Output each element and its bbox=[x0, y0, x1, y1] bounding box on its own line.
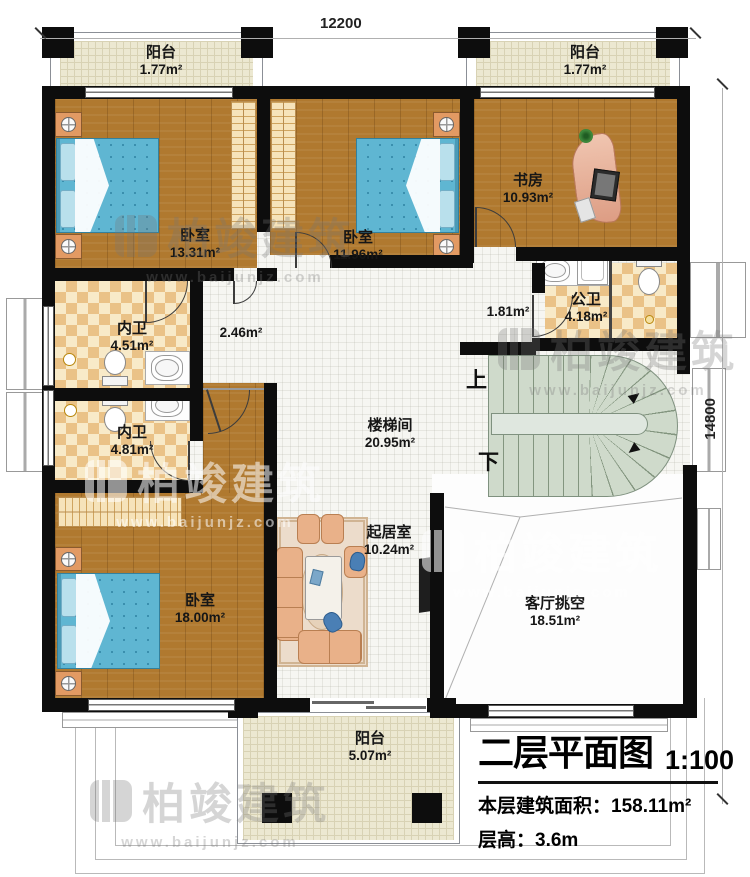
pillar bbox=[42, 27, 74, 58]
wardrobe bbox=[58, 497, 182, 527]
wall-segment bbox=[264, 698, 310, 712]
room-label-balcony-tr: 阳台1.77m² bbox=[525, 44, 645, 78]
nightstand bbox=[55, 547, 82, 571]
pillow bbox=[60, 190, 76, 228]
lamp-icon bbox=[61, 676, 76, 691]
wall-segment bbox=[677, 86, 690, 374]
room-label-bedroom2: 卧室11.96m² bbox=[298, 229, 418, 263]
wall-segment bbox=[532, 338, 690, 351]
wall-segment bbox=[516, 247, 690, 261]
sofa bbox=[276, 547, 303, 641]
nightstand bbox=[55, 671, 82, 696]
pillow bbox=[61, 578, 77, 617]
window bbox=[85, 87, 233, 98]
room-label-bedroom1: 卧室13.31m² bbox=[135, 227, 255, 261]
exterior-window bbox=[697, 508, 721, 570]
toilet-icon bbox=[102, 350, 128, 386]
nightstand bbox=[55, 234, 82, 259]
window bbox=[43, 306, 54, 386]
wardrobe bbox=[271, 101, 296, 229]
lamp-icon bbox=[439, 239, 454, 254]
bed-sheet bbox=[406, 139, 440, 232]
floor-drain-icon bbox=[645, 315, 654, 324]
nightstand bbox=[55, 112, 82, 137]
pillar bbox=[430, 698, 456, 718]
room-label-living: 起居室10.24m² bbox=[329, 524, 449, 558]
area-label-hall-a: 2.46m² bbox=[181, 325, 301, 341]
pillar bbox=[262, 793, 292, 823]
wall-segment bbox=[532, 263, 545, 293]
lamp-icon bbox=[61, 239, 76, 254]
pillow bbox=[60, 143, 76, 181]
staircase bbox=[488, 355, 678, 497]
area-label-hall-b: 1.81m² bbox=[448, 304, 568, 320]
floor-plan: 阳台1.77m² 阳台1.77m² 卧室13.31m² 卧室11.96m² 书房… bbox=[0, 0, 750, 877]
exterior-window bbox=[6, 298, 44, 390]
room-label-balcony-b: 阳台5.07m² bbox=[310, 730, 430, 764]
title-block: 二层平面图 1:100 本层建筑面积：158.11m² 层高：3.6m bbox=[478, 724, 744, 852]
bed bbox=[56, 138, 159, 233]
exterior-window bbox=[6, 392, 44, 472]
room-label-void: 客厅挑空18.51m² bbox=[495, 595, 615, 629]
computer-monitor-icon bbox=[590, 168, 620, 201]
wall-segment bbox=[264, 383, 277, 698]
dimension-right: 14800 bbox=[702, 398, 719, 440]
nightstand bbox=[433, 112, 460, 137]
pillow bbox=[439, 143, 455, 181]
dimension-line-top bbox=[40, 38, 696, 39]
lamp-icon bbox=[61, 552, 76, 567]
pillar bbox=[241, 27, 273, 58]
sliding-door-leaf bbox=[312, 701, 374, 704]
sliding-door-leaf bbox=[366, 706, 426, 709]
exterior-window bbox=[690, 262, 746, 338]
stair-up-label: 上 bbox=[466, 364, 487, 394]
room-label-study: 书房10.93m² bbox=[468, 172, 588, 206]
room-label-bath2: 内卫4.81m² bbox=[72, 424, 192, 458]
sofa bbox=[298, 630, 362, 664]
plant-icon bbox=[579, 129, 593, 143]
bed-sheet bbox=[76, 574, 110, 668]
wall-segment bbox=[42, 480, 203, 493]
void-sight-lines bbox=[430, 466, 697, 716]
sink-icon bbox=[151, 355, 183, 381]
drawing-scale: 1:100 bbox=[665, 745, 734, 776]
floor-area-line: 本层建筑面积：158.11m² bbox=[478, 791, 744, 818]
pillar bbox=[458, 27, 490, 58]
room-label-balcony-tl: 阳台1.77m² bbox=[101, 44, 221, 78]
coffee-table bbox=[305, 556, 342, 620]
towel-ring-icon bbox=[63, 353, 76, 366]
armchair bbox=[297, 514, 320, 544]
stair-landing bbox=[491, 413, 648, 435]
bed bbox=[356, 138, 459, 233]
pillar bbox=[412, 793, 442, 823]
window bbox=[488, 705, 634, 717]
lamp-icon bbox=[439, 117, 454, 132]
floor-height-line: 层高：3.6m bbox=[478, 825, 744, 852]
title-underline bbox=[478, 781, 718, 784]
pillow bbox=[439, 190, 455, 228]
towel-ring-icon bbox=[64, 404, 77, 417]
room-label-bedroom3: 卧室18.00m² bbox=[140, 592, 260, 626]
pillar bbox=[656, 27, 688, 58]
bed-sheet bbox=[75, 139, 109, 232]
wall-segment bbox=[683, 465, 697, 718]
toilet-icon bbox=[636, 257, 662, 295]
wall-segment bbox=[190, 268, 203, 441]
wall-segment bbox=[460, 342, 536, 355]
dimension-line-right bbox=[722, 88, 723, 804]
pillow bbox=[61, 625, 77, 664]
lamp-icon bbox=[61, 117, 76, 132]
wall-segment bbox=[257, 268, 277, 281]
room-label-stairwell: 楼梯间20.95m² bbox=[330, 417, 450, 451]
wardrobe bbox=[231, 101, 256, 229]
window bbox=[43, 390, 54, 466]
exterior-window bbox=[62, 712, 240, 728]
dimension-top: 12200 bbox=[320, 15, 362, 32]
wall-segment bbox=[42, 388, 203, 401]
wall-segment bbox=[257, 99, 270, 232]
room-label-bath1: 内卫4.51m² bbox=[72, 320, 192, 354]
wall-segment bbox=[42, 268, 234, 281]
drawing-title: 二层平面图 bbox=[478, 724, 653, 776]
window bbox=[480, 87, 655, 98]
stair-down-label: 下 bbox=[478, 446, 499, 476]
window bbox=[88, 699, 235, 711]
